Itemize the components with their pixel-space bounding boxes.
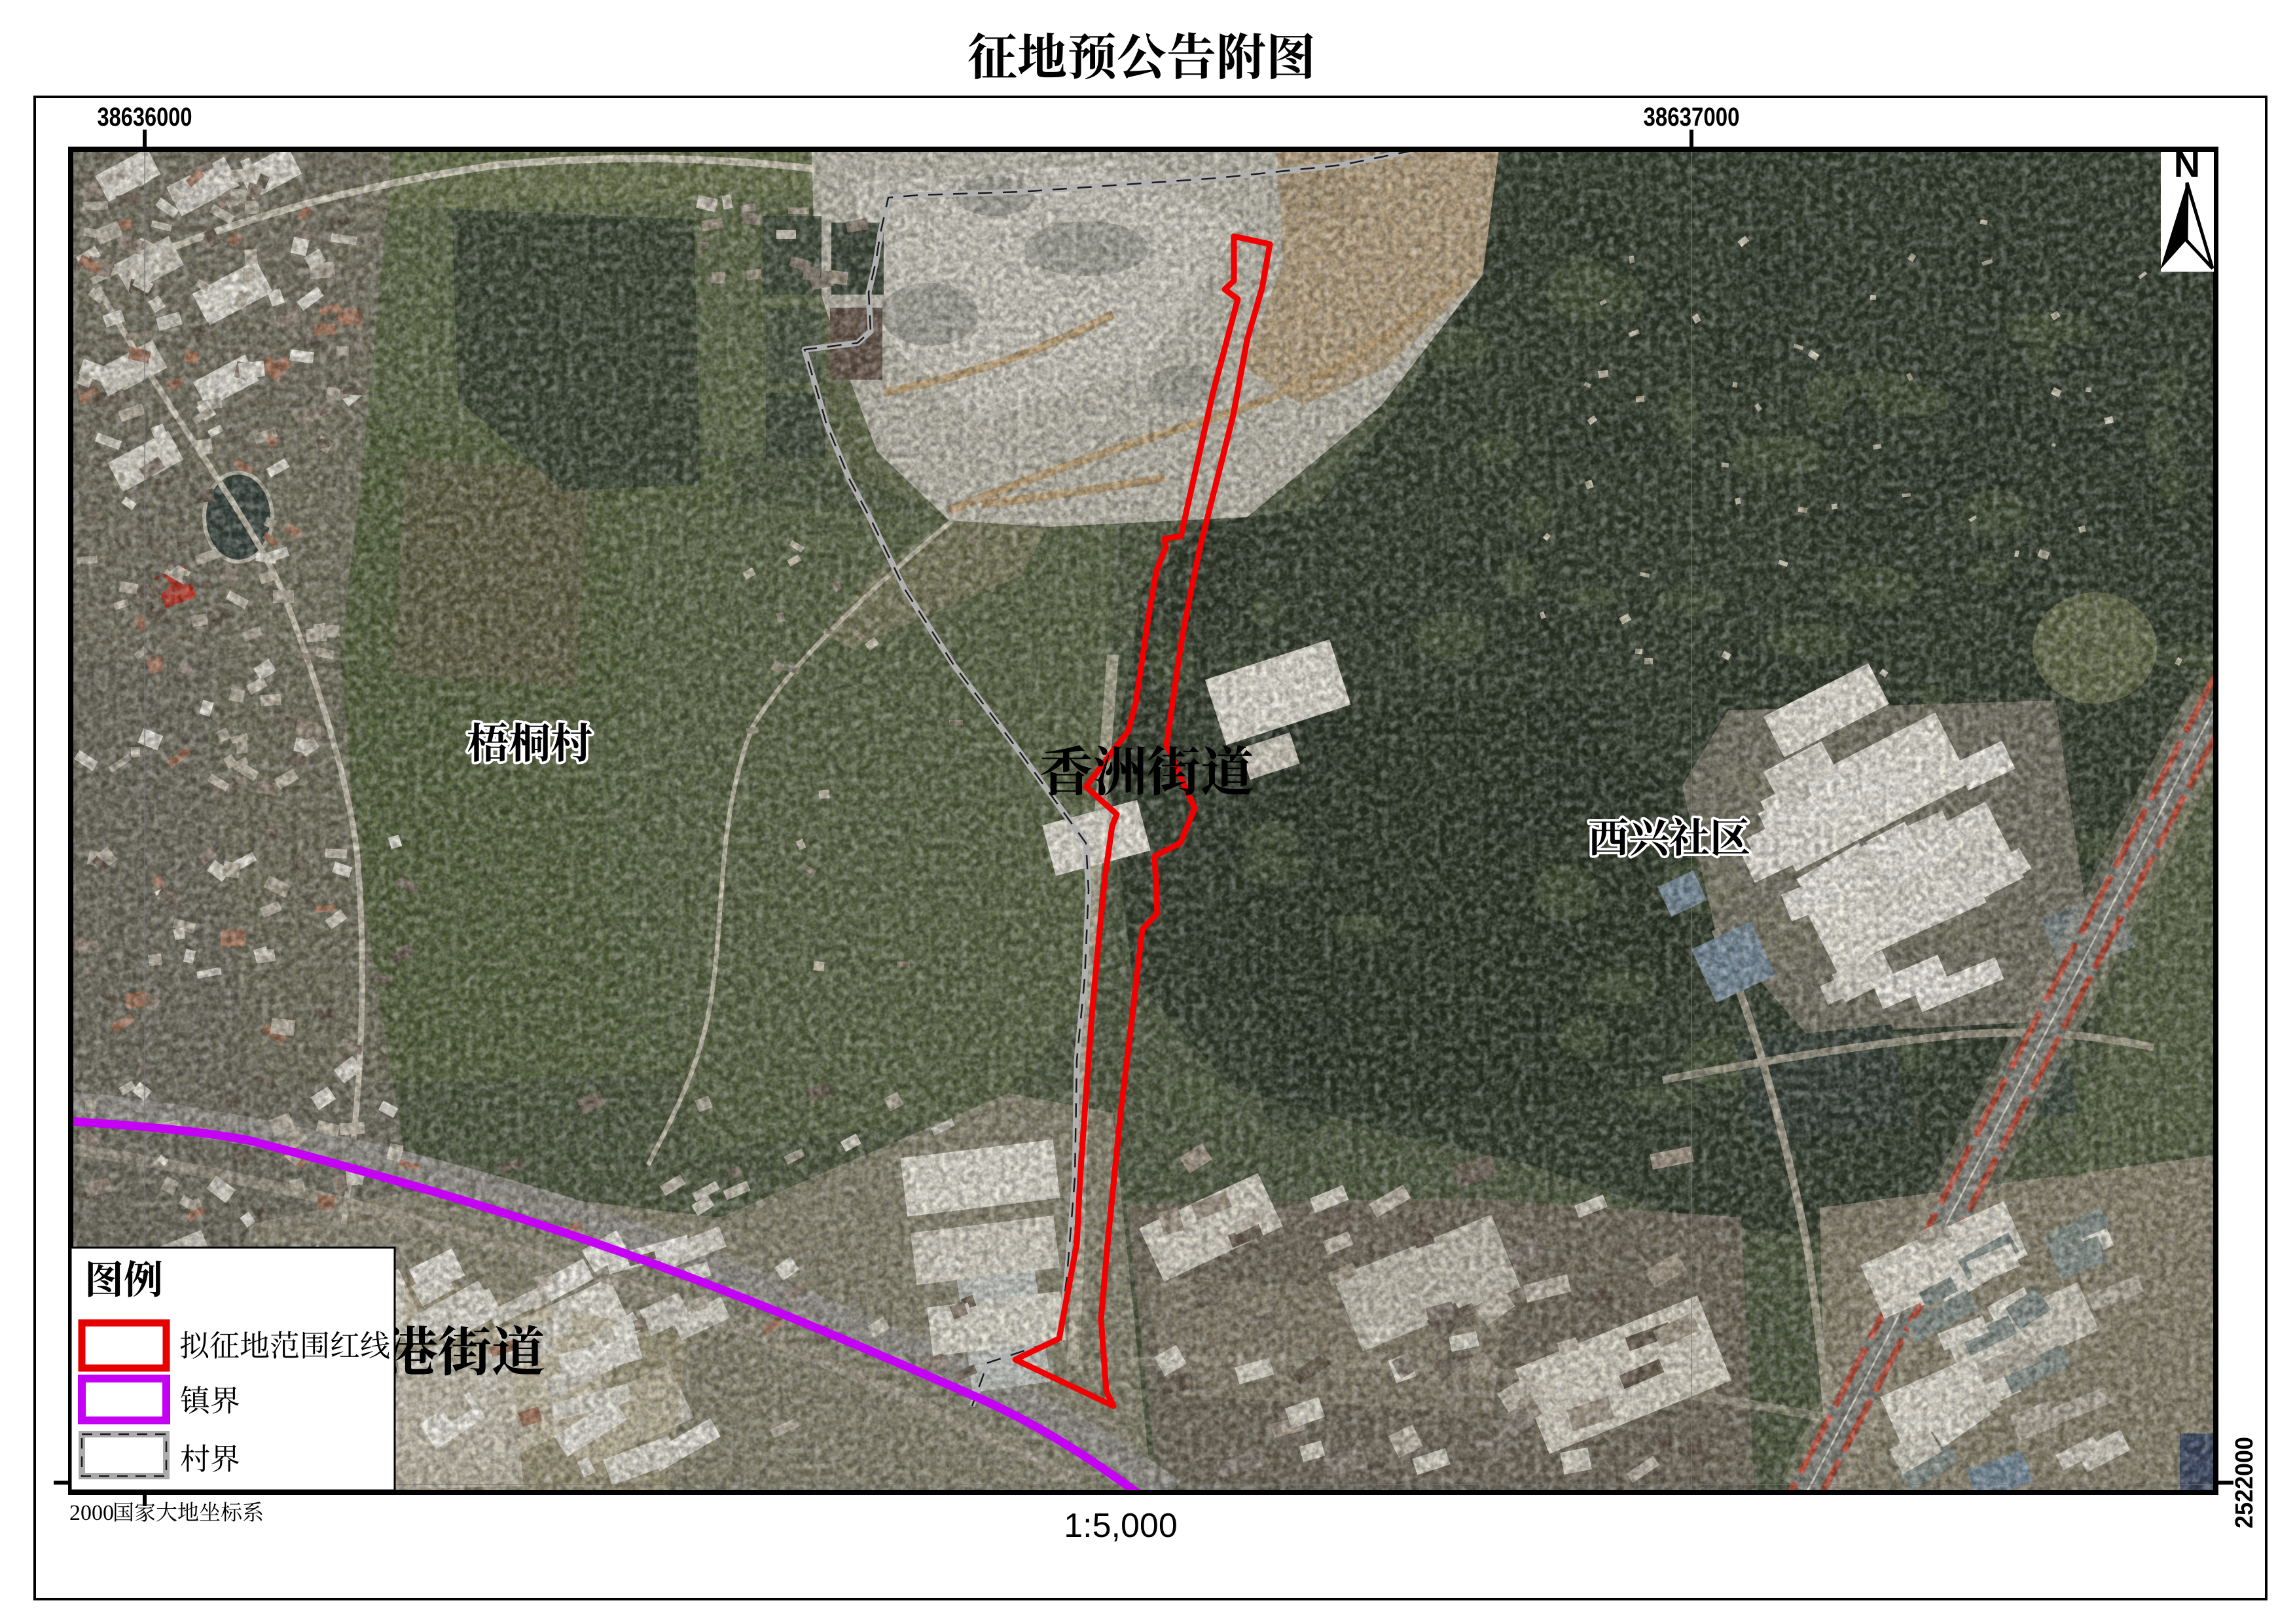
svg-text:38637000: 38637000 <box>1644 103 1740 132</box>
svg-text:2000: 2000 <box>69 1501 114 1525</box>
svg-text:N: N <box>2174 143 2200 185</box>
svg-text:1:5,000: 1:5,000 <box>1064 1507 1178 1545</box>
svg-text:2522000: 2522000 <box>2231 1437 2258 1528</box>
svg-text:38636000: 38636000 <box>98 103 192 132</box>
